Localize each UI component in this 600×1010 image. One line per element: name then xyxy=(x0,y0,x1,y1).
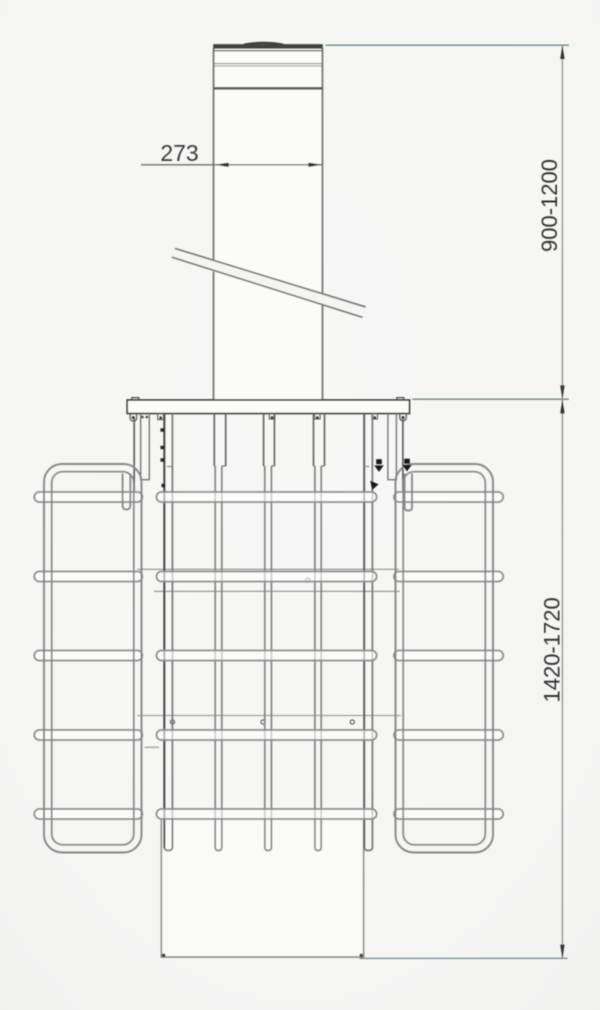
svg-text:900-1200: 900-1200 xyxy=(537,159,562,252)
svg-text:273: 273 xyxy=(160,140,198,166)
svg-text:1420-1720: 1420-1720 xyxy=(540,597,565,702)
